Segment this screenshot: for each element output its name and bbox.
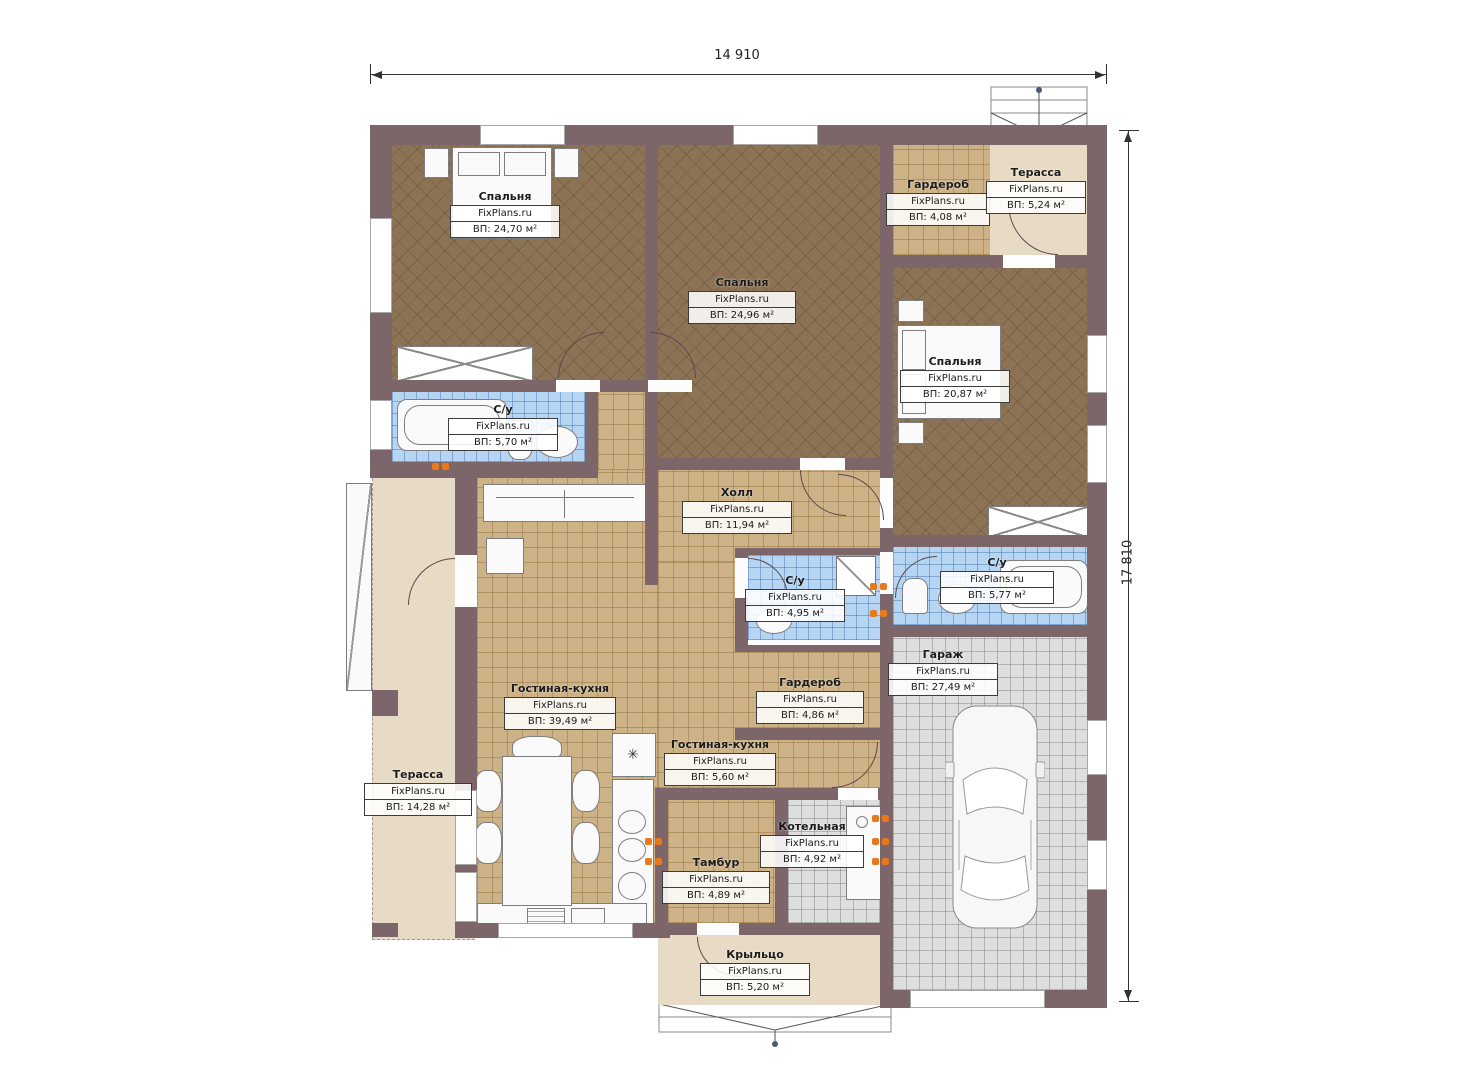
room-name: Крыльцо (700, 948, 810, 961)
nightstand (898, 422, 924, 444)
pillow (458, 152, 500, 176)
window (1087, 720, 1107, 775)
room-label-bathroom-right: С/у FixPlans.ru ВП: 5,77 м² (940, 556, 1054, 604)
radiator-icon (870, 610, 887, 617)
nightstand (424, 148, 449, 178)
dimension-tick (1119, 1001, 1139, 1002)
room-area: ВП: 5,77 м² (941, 587, 1053, 603)
room-area: ВП: 24,70 м² (451, 221, 559, 237)
sofa-line (564, 490, 565, 518)
door-opening (838, 788, 878, 800)
room-label-tambour: Тамбур FixPlans.ru ВП: 4,89 м² (662, 856, 770, 904)
terrace-column (372, 690, 398, 716)
watermark: FixPlans.ru (451, 206, 559, 221)
door-opening (800, 458, 845, 470)
wall (658, 458, 880, 470)
window (1087, 335, 1107, 393)
room-area: ВП: 14,28 м² (365, 799, 471, 815)
kitchen-sink (618, 810, 646, 834)
wall (735, 645, 880, 652)
wardrobe-unit (397, 346, 533, 382)
room-name: Гардероб (886, 178, 990, 191)
room-name: Гостиная-кухня (504, 682, 616, 695)
room-name: С/у (745, 574, 845, 587)
room-name: Спальня (900, 355, 1010, 368)
sofa (483, 484, 647, 522)
watermark: FixPlans.ru (665, 754, 775, 769)
radiator-icon (872, 858, 889, 865)
room-name: Холл (682, 486, 792, 499)
room-area: ВП: 39,49 м² (505, 713, 615, 729)
window (1087, 425, 1107, 483)
door-opening (697, 923, 739, 935)
chair (572, 822, 600, 864)
watermark: FixPlans.ru (449, 419, 557, 434)
dimension-arrow (372, 71, 382, 79)
kitchen-sink (618, 872, 646, 900)
room-name: Спальня (688, 276, 796, 289)
room-label-garage: Гараж FixPlans.ru ВП: 27,49 м² (888, 648, 998, 696)
room-name: Котельная (760, 820, 864, 833)
room-label-bedroom-right: Спальня FixPlans.ru ВП: 20,87 м² (900, 355, 1010, 403)
room-name: Терасса (986, 166, 1086, 179)
watermark: FixPlans.ru (761, 836, 863, 851)
dimension-width-label: 14 910 (687, 48, 787, 63)
door-opening (880, 478, 893, 528)
room-label-living-kitchen: Гостиная-кухня FixPlans.ru ВП: 39,49 м² (504, 682, 616, 730)
window (370, 400, 392, 450)
chair (474, 822, 502, 864)
radiator-icon (645, 858, 662, 865)
room-area: ВП: 24,96 м² (689, 307, 795, 323)
window (1087, 840, 1107, 890)
room-label-hall: Холл FixPlans.ru ВП: 11,94 м² (682, 486, 792, 534)
room-name: Гараж (888, 648, 998, 661)
dimension-arrow (1124, 990, 1132, 1000)
side-table (486, 538, 524, 574)
room-label-wardrobe-top: Гардероб FixPlans.ru ВП: 4,08 м² (886, 178, 990, 226)
wall (455, 468, 477, 938)
room-name: С/у (448, 403, 558, 416)
window (370, 218, 392, 313)
room-name: С/у (940, 556, 1054, 569)
room-area: ВП: 4,95 м² (746, 605, 844, 621)
exterior-stairs (346, 483, 372, 691)
garage-door (910, 990, 1045, 1008)
watermark: FixPlans.ru (663, 872, 769, 887)
pillow (504, 152, 546, 176)
terrace-column (372, 923, 398, 937)
watermark: FixPlans.ru (901, 371, 1009, 386)
burner-icon: ✳ (627, 747, 639, 763)
room-area: ВП: 4,92 м² (761, 851, 863, 867)
room-label-bathroom-left: С/у FixPlans.ru ВП: 5,70 м² (448, 403, 558, 451)
room-area: ВП: 27,49 м² (889, 679, 997, 695)
radiator-icon (872, 815, 889, 822)
room-area: ВП: 5,70 м² (449, 434, 557, 450)
wall (658, 923, 893, 935)
room-name: Тамбур (662, 856, 770, 869)
window (733, 125, 818, 145)
room-area: ВП: 5,60 м² (665, 769, 775, 785)
watermark: FixPlans.ru (987, 182, 1085, 197)
watermark: FixPlans.ru (887, 194, 989, 209)
room-label-living-kitchen-pass: Гостиная-кухня FixPlans.ru ВП: 5,60 м² (664, 738, 776, 786)
floor-corridor (598, 392, 645, 470)
floor-plan: 14 910 17 810 (0, 0, 1474, 1080)
watermark: FixPlans.ru (757, 692, 863, 707)
dimension-tick (370, 64, 371, 84)
porch-steps (658, 1003, 892, 1049)
car (945, 700, 1045, 934)
room-label-bedroom-top-middle: Спальня FixPlans.ru ВП: 24,96 м² (688, 276, 796, 324)
watermark: FixPlans.ru (889, 664, 997, 679)
radiator-icon (872, 838, 889, 845)
room-area: ВП: 5,24 м² (987, 197, 1085, 213)
room-area: ВП: 11,94 м² (683, 517, 791, 533)
window (480, 125, 565, 145)
watermark: FixPlans.ru (941, 572, 1053, 587)
room-label-bathroom-middle: С/у FixPlans.ru ВП: 4,95 м² (745, 574, 845, 622)
wall (645, 392, 658, 585)
watermark: FixPlans.ru (365, 784, 471, 799)
room-label-wardrobe-middle: Гардероб FixPlans.ru ВП: 4,86 м² (756, 676, 864, 724)
window (498, 923, 633, 938)
radiator-icon (645, 838, 662, 845)
room-name: Гардероб (756, 676, 864, 689)
door-opening (455, 555, 477, 607)
room-label-terrace-left: Терасса FixPlans.ru ВП: 14,28 м² (364, 768, 472, 816)
room-name: Гостиная-кухня (664, 738, 776, 751)
dimension-tick (1119, 130, 1139, 131)
wall (585, 392, 598, 462)
room-label-boiler: Котельная FixPlans.ru ВП: 4,92 м² (760, 820, 864, 868)
nightstand (554, 148, 579, 178)
dining-table (502, 756, 572, 906)
wall (893, 535, 1087, 547)
window (455, 872, 477, 922)
watermark: FixPlans.ru (505, 698, 615, 713)
radiator-icon (432, 463, 449, 470)
chair (474, 770, 502, 812)
wall (893, 625, 1087, 637)
room-area: ВП: 20,87 м² (901, 386, 1009, 402)
sofa-line (496, 497, 634, 498)
room-area: ВП: 4,89 м² (663, 887, 769, 903)
room-label-porch: Крыльцо FixPlans.ru ВП: 5,20 м² (700, 948, 810, 996)
dimension-line-top (370, 74, 1107, 75)
wall (893, 255, 1087, 268)
room-name: Терасса (364, 768, 472, 781)
kitchen-sink (618, 838, 646, 862)
door-opening (648, 380, 692, 392)
dimension-arrow (1095, 71, 1105, 79)
door-opening (1003, 255, 1055, 268)
wardrobe-unit (988, 506, 1088, 538)
nightstand (898, 300, 924, 322)
room-label-bedroom-top-left: Спальня FixPlans.ru ВП: 24,70 м² (450, 190, 560, 238)
watermark: FixPlans.ru (683, 502, 791, 517)
room-label-terrace-top: Терасса FixPlans.ru ВП: 5,24 м² (986, 166, 1086, 214)
dimension-line-right (1128, 130, 1129, 1002)
wall (735, 548, 880, 555)
watermark: FixPlans.ru (689, 292, 795, 307)
dimension-tick (1106, 64, 1107, 84)
watermark: FixPlans.ru (701, 964, 809, 979)
radiator-icon (870, 583, 887, 590)
room-area: ВП: 4,08 м² (887, 209, 989, 225)
room-area: ВП: 5,20 м² (701, 979, 809, 995)
chair (572, 770, 600, 812)
door-opening (556, 380, 600, 392)
dimension-arrow (1124, 132, 1132, 142)
wall (370, 462, 598, 478)
room-area: ВП: 4,86 м² (757, 707, 863, 723)
wall (392, 380, 658, 392)
watermark: FixPlans.ru (746, 590, 844, 605)
room-name: Спальня (450, 190, 560, 203)
